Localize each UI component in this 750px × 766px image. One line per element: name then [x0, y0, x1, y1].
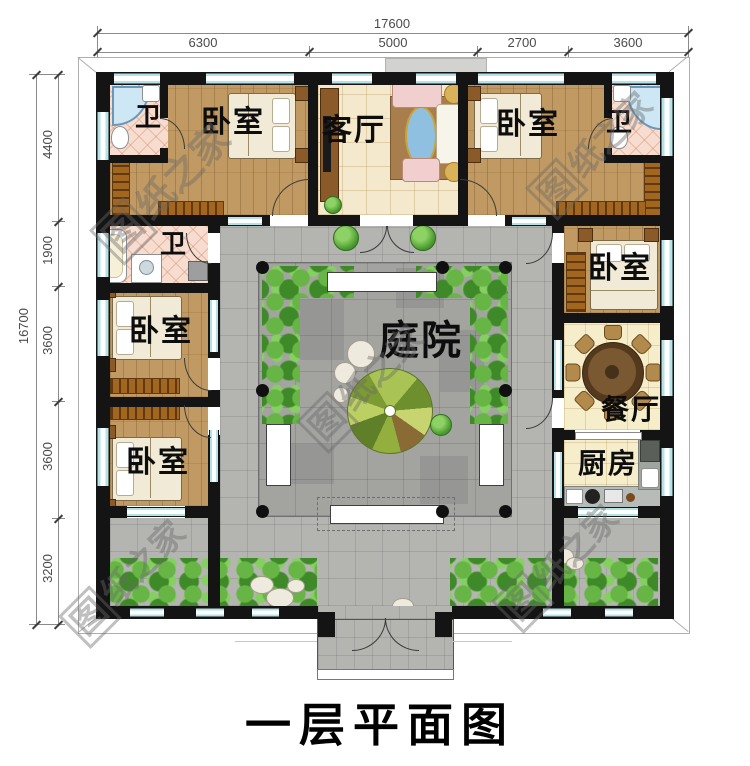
- dim-label: 3200: [40, 554, 55, 583]
- column-dot: [499, 384, 512, 397]
- column-dot: [256, 261, 269, 274]
- sink: [641, 468, 659, 488]
- window: [612, 72, 656, 85]
- dim-line: [97, 52, 688, 53]
- dining-chair: [566, 364, 581, 382]
- bench: [330, 505, 444, 524]
- shrub: [430, 414, 452, 436]
- room-label-bed-low-left: 卧室: [126, 448, 190, 478]
- interior-wall: [552, 226, 564, 233]
- room-label-dining: 餐厅: [601, 396, 661, 424]
- porch-column: [318, 612, 335, 637]
- room-label-bath-left: 卫: [160, 232, 188, 258]
- topiary: [333, 225, 359, 251]
- plan-title: 一层平面图: [245, 689, 515, 755]
- room-label-bed-mid-left: 卧室: [129, 317, 193, 347]
- window: [114, 72, 160, 85]
- dim-label: 2700: [508, 35, 537, 50]
- nightstand: [466, 148, 481, 163]
- blanket-fold: [591, 290, 655, 291]
- window: [332, 72, 372, 85]
- bench: [327, 272, 437, 292]
- column-dot: [256, 384, 269, 397]
- window: [206, 72, 294, 85]
- dim-line: [36, 75, 37, 625]
- dim-label: 6300: [189, 35, 218, 50]
- sink: [142, 85, 160, 102]
- rock: [287, 579, 305, 593]
- pillow: [272, 126, 290, 152]
- dishwasher: [566, 489, 583, 504]
- interior-wall: [96, 283, 220, 293]
- window: [512, 216, 546, 226]
- window: [660, 340, 674, 396]
- dim-label-total-height: 16700: [16, 308, 31, 344]
- window: [228, 216, 262, 226]
- plant: [324, 196, 342, 214]
- room-label-bed-right: 卧室: [588, 254, 652, 284]
- interior-wall: [552, 430, 575, 440]
- interior-wall: [612, 155, 660, 163]
- window: [209, 300, 219, 352]
- interior-wall: [308, 72, 318, 226]
- nightstand: [466, 86, 481, 101]
- dim-tick: [32, 620, 41, 629]
- window: [605, 607, 633, 618]
- interior-wall: [552, 506, 578, 518]
- window: [553, 452, 563, 498]
- window: [252, 607, 279, 618]
- bench: [266, 424, 291, 486]
- window: [96, 428, 110, 486]
- column-dot: [436, 261, 449, 274]
- interior-wall: [208, 226, 220, 233]
- window: [553, 340, 563, 390]
- floor-plan-sheet: 17600 6300 5000 2700 3600 16700 4400 190…: [0, 0, 750, 766]
- window: [660, 98, 674, 156]
- window: [660, 448, 674, 496]
- pillow: [272, 98, 290, 124]
- exterior-wall: [96, 72, 674, 85]
- nightstand: [578, 228, 593, 242]
- toilet: [111, 126, 129, 149]
- cabinet: [188, 261, 208, 281]
- window: [130, 607, 164, 618]
- window: [660, 240, 674, 306]
- column-dot: [436, 505, 449, 518]
- window: [478, 72, 564, 85]
- dining-chair: [604, 325, 622, 340]
- room-label-bed-top-right: 卧室: [496, 110, 560, 140]
- dim-label: 3600: [40, 442, 55, 471]
- hedge: [262, 266, 300, 424]
- interior-wall: [185, 506, 220, 518]
- construction-line: [452, 641, 512, 642]
- sofa: [402, 158, 440, 182]
- dining-table-center: [605, 365, 619, 379]
- column-dot: [499, 505, 512, 518]
- porch-column: [435, 612, 452, 637]
- window: [127, 507, 185, 517]
- dim-label: 5000: [379, 35, 408, 50]
- hedge: [470, 266, 508, 424]
- interior-wall: [552, 313, 660, 323]
- paving-patch: [300, 300, 344, 360]
- interior-wall: [96, 506, 127, 518]
- window: [96, 300, 110, 356]
- umbrella-pole: [384, 405, 396, 417]
- bowl: [626, 493, 635, 502]
- room-label-bath-top-left: 卫: [135, 105, 163, 131]
- dim-line: [58, 75, 59, 625]
- washer-drum: [139, 260, 154, 275]
- coffee-table: [405, 106, 437, 166]
- wardrobe: [566, 252, 586, 312]
- nightstand: [644, 228, 659, 242]
- interior-wall: [638, 506, 660, 518]
- sofa: [392, 82, 442, 108]
- column-dot: [256, 505, 269, 518]
- dim-label: 3600: [614, 35, 643, 50]
- window: [96, 112, 110, 160]
- interior-wall: [640, 430, 660, 440]
- stove-grid: [604, 489, 623, 503]
- column-dot: [499, 261, 512, 274]
- interior-wall: [110, 155, 160, 163]
- dim-label: 1900: [40, 236, 55, 265]
- wardrobe: [110, 378, 180, 394]
- dining-chair: [646, 364, 661, 382]
- fridge: [640, 440, 660, 462]
- porch-step: [317, 669, 454, 680]
- dim-label: 3600: [40, 326, 55, 355]
- sliding-door: [575, 432, 642, 440]
- dim-label: 4400: [40, 130, 55, 159]
- window: [416, 72, 456, 85]
- dim-tick: [54, 620, 63, 629]
- room-label-kitchen: 厨房: [578, 450, 638, 478]
- window: [196, 607, 224, 618]
- dim-line: [97, 33, 688, 34]
- bench: [479, 424, 504, 486]
- construction-line: [235, 641, 317, 642]
- dim-label-total-width: 17600: [374, 16, 410, 31]
- room-label-living: 客厅: [322, 116, 386, 146]
